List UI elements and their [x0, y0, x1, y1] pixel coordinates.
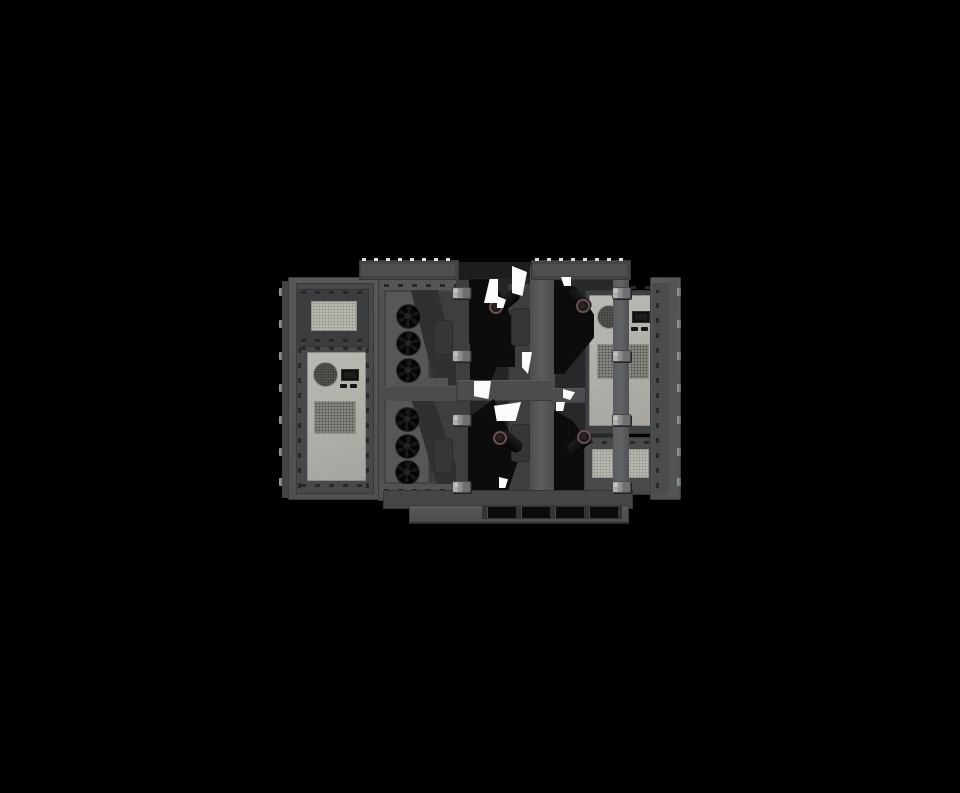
- base-vent-slot: [487, 507, 516, 518]
- hinge-pin: [677, 352, 681, 360]
- left-door-mid-clips: [301, 347, 364, 350]
- top-cap-left-gap-specks: [362, 258, 452, 261]
- right-exchanger-grille-right: [629, 344, 649, 379]
- hinge-pin: [677, 288, 681, 296]
- cooling-fan: [395, 407, 420, 432]
- right-lower-vent-2: [628, 449, 649, 478]
- left-exchanger-slot-2: [350, 384, 357, 388]
- top-cap-right-gap-specks: [535, 258, 627, 261]
- hinge-pin: [677, 478, 681, 486]
- right-exchanger-slot-1: [631, 327, 638, 331]
- center-crossbar: [458, 380, 556, 401]
- nozzle-lens: [577, 430, 591, 444]
- right-door-recess: [652, 283, 669, 492]
- toggle-latch: [452, 414, 471, 426]
- hinge-pin: [677, 384, 681, 392]
- right-door-edge-strip: [613, 267, 629, 507]
- top-cap-right-face: [533, 264, 627, 276]
- cooling-fan: [395, 460, 420, 485]
- toggle-latch: [612, 414, 631, 426]
- toggle-latch: [452, 287, 471, 299]
- hinge-pin: [677, 416, 681, 424]
- hinge-pin: [677, 320, 681, 328]
- toggle-latch: [612, 481, 631, 493]
- cooling-fan: [396, 331, 421, 356]
- cooling-fan: [395, 434, 420, 459]
- toggle-latch: [612, 287, 631, 299]
- toggle-latch: [452, 350, 471, 362]
- right-exchanger-slot-2: [641, 327, 648, 331]
- product-render-canvas: [0, 0, 960, 793]
- right-exchanger-display: [632, 311, 650, 323]
- toggle-latch: [452, 481, 471, 493]
- toggle-latch: [612, 350, 631, 362]
- right-lower-vent-1: [592, 449, 613, 478]
- fan-module-divider: [380, 386, 468, 401]
- background-gap: [474, 381, 491, 399]
- right-door-clip-column: [656, 290, 659, 488]
- left-door-bottom-clips: [301, 484, 364, 487]
- nozzle-lens: [493, 431, 507, 445]
- top-cap-left-face: [361, 264, 455, 276]
- top-vent-grille: [311, 301, 357, 331]
- nozzle-lens: [576, 299, 590, 313]
- rail-slot: [434, 320, 453, 355]
- left-exchanger-display: [341, 369, 359, 381]
- base-vent-slot: [555, 507, 584, 518]
- rail-slot: [511, 308, 530, 346]
- cooling-fan: [396, 358, 421, 383]
- cooling-fan: [396, 304, 421, 329]
- rail-slot: [434, 438, 453, 473]
- left-exchanger-slot-1: [340, 384, 347, 388]
- top-vent-clips-top: [301, 291, 364, 294]
- base-vent-slot: [521, 507, 550, 518]
- top-vent-clips-bottom: [301, 339, 364, 342]
- left-exchanger-grille: [314, 401, 356, 434]
- base-vent-slot: [589, 507, 618, 518]
- hinge-pin: [677, 448, 681, 456]
- left-exchanger-fan-intake: [313, 362, 338, 387]
